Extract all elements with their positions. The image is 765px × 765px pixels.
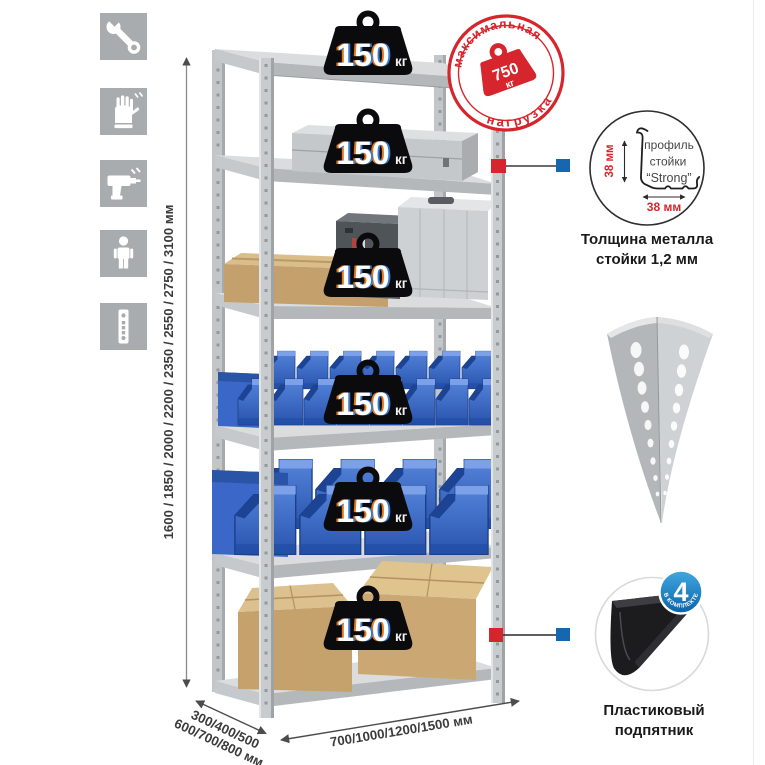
- angle-post-illustration: [607, 317, 713, 523]
- post-front-left: [259, 58, 274, 718]
- rack-infographic: 150 150 150 кг 150 150 150 кг 150 150 15…: [0, 0, 765, 765]
- load-unit: кг: [395, 510, 408, 525]
- max-load-stamp: максимальная нагрузка 750 кг: [433, 0, 579, 146]
- load-value: 150: [336, 259, 389, 295]
- post-back-left: [212, 50, 225, 692]
- profile-caption-line2: стойки 1,2 мм: [558, 250, 736, 270]
- profile-text-3: “Strong”: [646, 171, 691, 185]
- profile-caption-line1: Толщина металла: [558, 230, 736, 250]
- connector-top: [491, 159, 570, 173]
- foot-caption: Пластиковый подпятник: [565, 701, 743, 741]
- badge-value: 4: [673, 577, 688, 607]
- profile-text-1: профиль: [644, 138, 694, 152]
- profile-dim-horizontal: 38 мм: [647, 200, 682, 214]
- kit-count-badge: 4 В КОМПЛЕКТЕ: [660, 571, 703, 614]
- profile-diagram: 38 мм 38 мм профиль стойки “Strong”: [590, 111, 704, 225]
- load-value: 150: [336, 612, 389, 648]
- profile-dim-vertical: 38 мм: [604, 144, 616, 177]
- profile-caption: Толщина металла стойки 1,2 мм: [558, 230, 736, 270]
- load-value: 150: [336, 493, 389, 529]
- load-unit: кг: [395, 276, 408, 291]
- load-badge-1: 150 150 150 кг: [324, 14, 413, 76]
- width-label: 700/1000/1200/1500 мм: [329, 712, 474, 750]
- load-value: 150: [336, 37, 389, 73]
- blue-marker-top: [556, 159, 570, 172]
- foot-caption-line2: подпятник: [565, 721, 743, 741]
- load-unit: кг: [395, 403, 408, 418]
- height-label: 1600 / 1850 / 2000 / 2200 / 2350 / 2550 …: [161, 205, 176, 540]
- foot-illustration: 4 В КОМПЛЕКТЕ: [596, 571, 709, 691]
- blue-marker-bottom: [556, 628, 570, 641]
- depth-dimension: 300/400/500 600/700/800 мм: [172, 701, 272, 765]
- page-edge-divider: [753, 0, 754, 765]
- aluminum-trunk: [398, 197, 500, 300]
- load-value: 150: [336, 135, 389, 171]
- height-dimension: 1600 / 1850 / 2000 / 2200 / 2350 / 2550 …: [161, 58, 187, 687]
- foot-caption-line1: Пластиковый: [565, 701, 743, 721]
- load-badge-2: 150 150 150 кг: [324, 112, 413, 174]
- load-unit: кг: [395, 152, 408, 167]
- infographic-canvas: 150 150 150 кг 150 150 150 кг 150 150 15…: [0, 0, 765, 765]
- load-unit: кг: [395, 629, 408, 644]
- load-unit: кг: [395, 54, 408, 69]
- connector-bottom: [489, 628, 570, 642]
- red-marker-bottom: [489, 628, 503, 642]
- profile-text-2: стойки: [650, 155, 687, 169]
- width-dimension: 700/1000/1200/1500 мм: [281, 701, 519, 750]
- red-marker-top: [491, 159, 506, 173]
- load-value: 150: [336, 386, 389, 422]
